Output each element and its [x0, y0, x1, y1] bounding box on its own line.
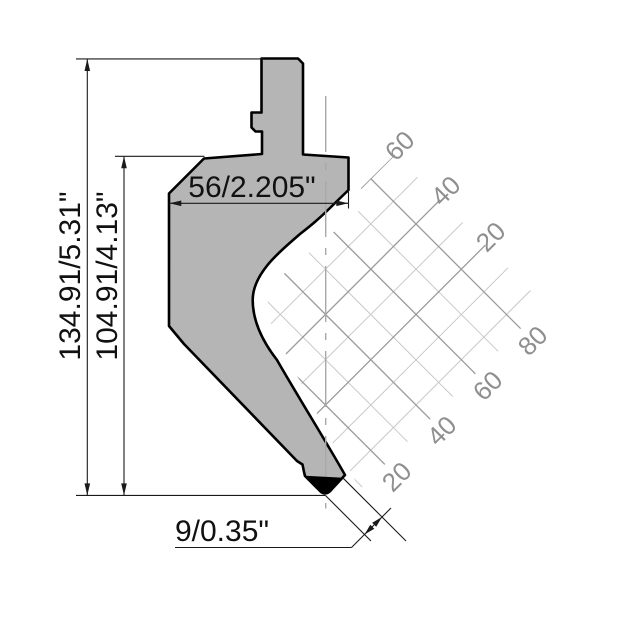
grid-label-ne-40: 40 — [425, 170, 467, 212]
arrowhead-up-icon — [85, 59, 91, 71]
arrowhead-down-icon — [85, 483, 91, 495]
dimension-tip: 9/0.35" — [175, 478, 406, 548]
dimension-label-total-height: 134.91/5.31" — [54, 191, 87, 360]
arrowhead-right-icon — [336, 201, 348, 207]
arrowhead-up-icon — [121, 156, 127, 168]
arrowhead-down-icon — [121, 483, 127, 495]
punch-technical-drawing: 60 40 20 80 60 40 20 134.91/5.31" 104.91… — [0, 0, 618, 618]
dimension-label-working-height: 104.91/4.13" — [91, 191, 124, 360]
drawing-svg: 60 40 20 80 60 40 20 134.91/5.31" 104.91… — [0, 0, 618, 618]
grid-label-ne-60: 60 — [379, 125, 421, 167]
dimension-label-tip: 9/0.35" — [175, 515, 269, 548]
dimension-label-shoulder-width: 56/2.205" — [188, 171, 315, 204]
grid-label-ne-20: 20 — [470, 216, 512, 258]
punch-body — [169, 59, 349, 494]
